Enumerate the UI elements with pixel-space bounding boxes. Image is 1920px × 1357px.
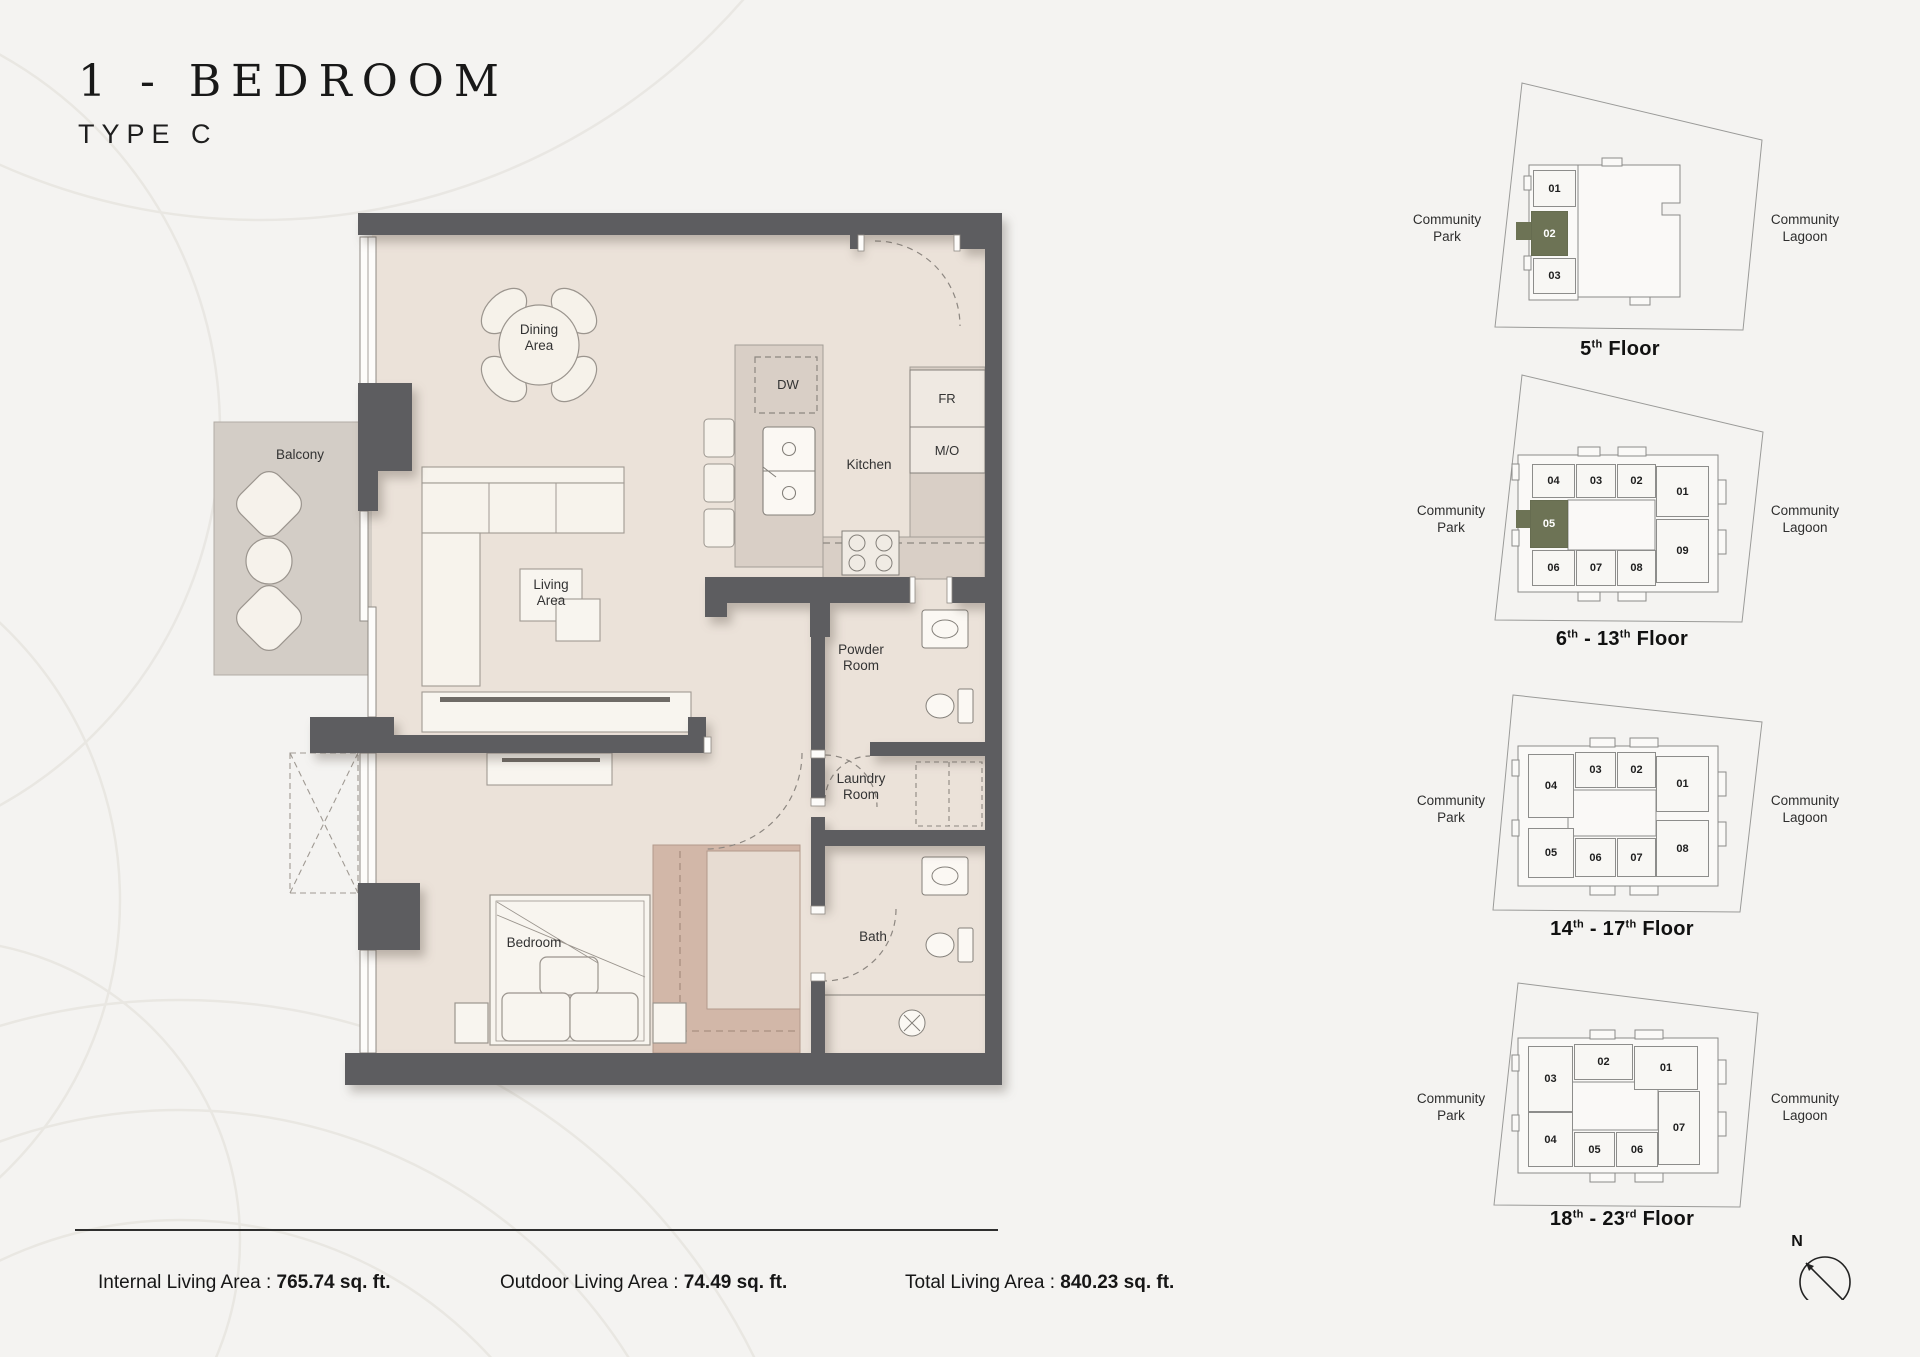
keyplan-unit-03: 03: [1575, 752, 1616, 788]
keyplan-unit-01: 01: [1656, 756, 1709, 812]
outdoor-living-area-stat: Outdoor Living Area : 74.49 sq. ft.: [500, 1272, 787, 1294]
keyplan-unit-05: 05: [1530, 500, 1568, 548]
keyplan-unit-03: 03: [1576, 464, 1616, 498]
outdoor-living-area-value: 74.49 sq. ft.: [684, 1272, 788, 1293]
keyplan-unit-04: 04: [1528, 754, 1574, 818]
community-lagoon-label-3: Community Lagoon: [1759, 792, 1851, 826]
room-label-living: Living Area: [533, 577, 568, 609]
keyplan-unit-08: 08: [1656, 820, 1709, 877]
community-park-label-2: Community Park: [1405, 502, 1497, 536]
dishwasher-label: DW: [777, 377, 799, 393]
total-living-area-stat: Total Living Area : 840.23 sq. ft.: [905, 1272, 1174, 1294]
keyplan-unit-03: 03: [1533, 258, 1576, 294]
community-lagoon-label-2: Community Lagoon: [1759, 502, 1851, 536]
floor-plan-drawing: [210, 205, 1040, 1105]
keyplan-unit-04: 04: [1528, 1112, 1573, 1167]
keyplan-unit-05: 05: [1574, 1132, 1615, 1167]
community-lagoon-label-1: Community Lagoon: [1759, 211, 1851, 245]
community-park-label-4: Community Park: [1405, 1090, 1497, 1124]
room-label-bedroom: Bedroom: [507, 935, 562, 951]
internal-living-area-stat: Internal Living Area : 765.74 sq. ft.: [98, 1272, 391, 1294]
page-subtitle: TYPE C: [78, 119, 509, 150]
keyplan-caption-floor-18-23: 18th - 23rd Floor: [1550, 1208, 1694, 1231]
keyplan-unit-02: 02: [1617, 464, 1656, 498]
keyplan-unit-07: 07: [1617, 838, 1656, 877]
brochure-page: 1 - BEDROOM TYPE C: [0, 0, 1920, 1357]
room-label-bath: Bath: [859, 929, 887, 945]
community-park-label-3: Community Park: [1405, 792, 1497, 826]
header: 1 - BEDROOM TYPE C: [78, 56, 509, 150]
room-label-balcony: Balcony: [276, 447, 324, 463]
keyplan-unit-07: 07: [1576, 550, 1616, 586]
room-label-laundry-room: Laundry Room: [837, 771, 886, 803]
keyplan-unit-04: 04: [1532, 464, 1575, 498]
compass-icon: [1800, 1257, 1850, 1300]
internal-living-area-value: 765.74 sq. ft.: [277, 1272, 391, 1293]
compass-north-label: N: [1791, 1233, 1803, 1251]
internal-living-area-label: Internal Living Area :: [98, 1272, 277, 1293]
keyplan-unit-01: 01: [1656, 466, 1709, 517]
keyplan-unit-02: 02: [1531, 211, 1568, 256]
keyplan-unit-09: 09: [1656, 519, 1709, 583]
total-living-area-value: 840.23 sq. ft.: [1060, 1272, 1174, 1293]
keyplan-unit-02: 02: [1617, 752, 1656, 788]
keyplan-unit-05: 05: [1528, 828, 1574, 878]
keyplan-unit-01: 01: [1533, 170, 1576, 207]
room-label-kitchen: Kitchen: [846, 457, 891, 473]
footer-divider: [75, 1229, 998, 1231]
keyplan-unit-06: 06: [1575, 838, 1616, 877]
keyplan-caption-floor-5: 5th Floor: [1580, 338, 1660, 361]
fridge-label: FR: [938, 391, 955, 407]
total-living-area-label: Total Living Area :: [905, 1272, 1060, 1293]
keyplan-caption-floor-14-17: 14th - 17th Floor: [1550, 918, 1694, 941]
floor-plan: Balcony Dining Area Living Area Kitchen …: [210, 205, 1040, 1105]
community-park-label-1: Community Park: [1401, 211, 1493, 245]
keyplan-caption-floor-6-13: 6th - 13th Floor: [1556, 628, 1688, 651]
keyplan-unit-06: 06: [1616, 1132, 1658, 1167]
page-title: 1 - BEDROOM: [78, 56, 509, 107]
keyplan-unit-01: 01: [1634, 1046, 1698, 1090]
microwave-oven-label: M/O: [935, 443, 960, 459]
keyplan-unit-06: 06: [1532, 550, 1575, 586]
room-label-powder-room: Powder Room: [838, 642, 884, 674]
keyplan-unit-08: 08: [1617, 550, 1656, 586]
keyplan-unit-03: 03: [1528, 1046, 1573, 1112]
keyplan-unit-07: 07: [1658, 1091, 1700, 1165]
community-lagoon-label-4: Community Lagoon: [1759, 1090, 1851, 1124]
outdoor-living-area-label: Outdoor Living Area :: [500, 1272, 684, 1293]
room-label-dining: Dining Area: [520, 322, 558, 354]
keyplan-unit-02: 02: [1574, 1044, 1633, 1080]
